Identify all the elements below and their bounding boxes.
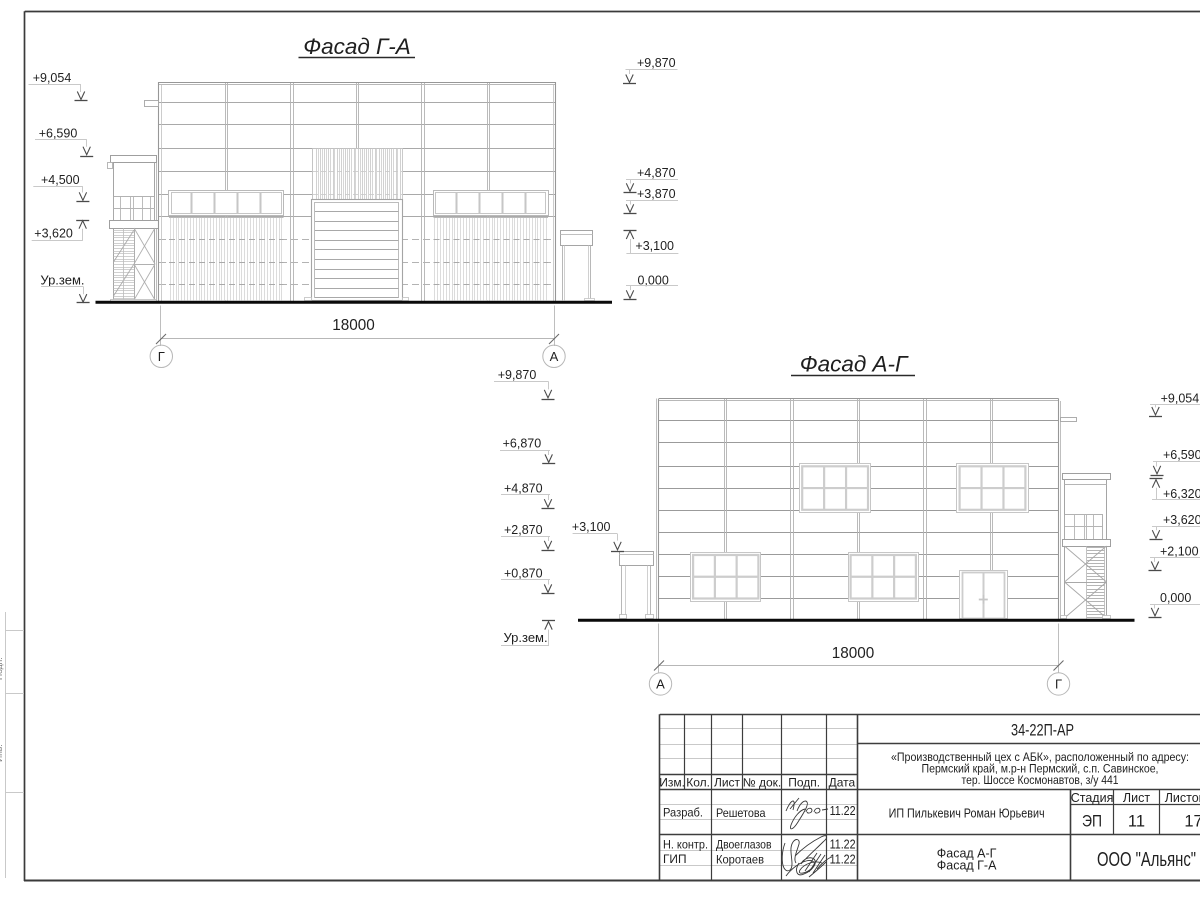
svg-text:тер. Шоссе Космонавтов, з/у 44: тер. Шоссе Космонавтов, з/у 441 [962, 773, 1119, 787]
svg-text:18000: 18000 [332, 317, 375, 334]
svg-text:+0,870: +0,870 [504, 566, 543, 580]
svg-text:17: 17 [1184, 813, 1200, 831]
svg-text:+4,500: +4,500 [41, 173, 80, 187]
svg-text:Лист: Лист [714, 776, 741, 790]
svg-text:+3,620: +3,620 [34, 227, 73, 241]
svg-text:Лист: Лист [1123, 791, 1150, 805]
svg-text:+3,620: +3,620 [1163, 513, 1200, 527]
svg-text:Решетова: Решетова [716, 806, 766, 820]
svg-text:А: А [550, 349, 559, 364]
svg-text:+6,590: +6,590 [1163, 448, 1200, 462]
svg-text:+9,870: +9,870 [498, 368, 537, 382]
svg-text:№ док.: № док. [743, 776, 781, 790]
svg-text:+3,100: +3,100 [635, 239, 674, 253]
svg-text:+4,870: +4,870 [504, 482, 543, 496]
svg-text:+2,870: +2,870 [504, 523, 543, 537]
svg-text:А: А [656, 677, 665, 692]
svg-text:ИП Пилькевич Роман Юрьевич: ИП Пилькевич Роман Юрьевич [889, 807, 1045, 821]
svg-text:Инв.: Инв. [0, 744, 4, 762]
svg-text:Г: Г [158, 349, 165, 364]
svg-text:Изм.: Изм. [659, 776, 685, 790]
svg-text:ООО "Альянс": ООО "Альянс" [1097, 849, 1196, 871]
svg-text:Н. контр.: Н. контр. [663, 838, 708, 852]
svg-text:18000: 18000 [832, 645, 875, 662]
svg-text:Дата: Дата [829, 776, 856, 790]
svg-text:+3,870: +3,870 [637, 187, 676, 201]
svg-text:Двоеглазов: Двоеглазов [716, 838, 772, 852]
svg-text:Фасад Г-А: Фасад Г-А [303, 34, 411, 59]
svg-text:Разраб.: Разраб. [663, 806, 703, 820]
svg-text:11.22: 11.22 [830, 853, 856, 867]
svg-text:Подп.: Подп. [788, 776, 820, 790]
svg-text:Г: Г [1055, 677, 1062, 692]
svg-text:+4,870: +4,870 [637, 166, 676, 180]
svg-text:11.22: 11.22 [830, 804, 856, 818]
svg-text:34-22П-АР: 34-22П-АР [1011, 722, 1074, 740]
svg-text:Ур.зем.: Ур.зем. [504, 630, 548, 645]
svg-text:Коротаев: Коротаев [716, 853, 764, 867]
svg-text:ЭП: ЭП [1082, 813, 1102, 831]
svg-text:Фасад А-Г: Фасад А-Г [800, 352, 909, 377]
svg-text:+9,054: +9,054 [33, 71, 72, 85]
svg-text:11.22: 11.22 [830, 838, 856, 852]
svg-text:Кол.: Кол. [686, 776, 710, 790]
svg-text:+9,054: +9,054 [1161, 391, 1200, 405]
svg-text:Фасад Г-А: Фасад Г-А [937, 859, 997, 873]
svg-text:Ур.зем.: Ур.зем. [40, 273, 84, 288]
svg-text:Листов: Листов [1165, 791, 1200, 805]
svg-text:+9,870: +9,870 [637, 56, 676, 70]
svg-text:+6,870: +6,870 [503, 437, 542, 451]
svg-text:ГИП: ГИП [663, 852, 687, 866]
svg-text:0,000: 0,000 [1160, 591, 1191, 605]
svg-text:+6,320: +6,320 [1163, 487, 1200, 501]
svg-text:11: 11 [1128, 813, 1145, 831]
svg-text:+3,100: +3,100 [572, 520, 611, 534]
svg-text:Стадия: Стадия [1071, 791, 1114, 805]
svg-text:+6,590: +6,590 [39, 126, 78, 140]
svg-text:Подп.: Подп. [0, 657, 4, 680]
svg-text:+2,100: +2,100 [1160, 544, 1199, 558]
